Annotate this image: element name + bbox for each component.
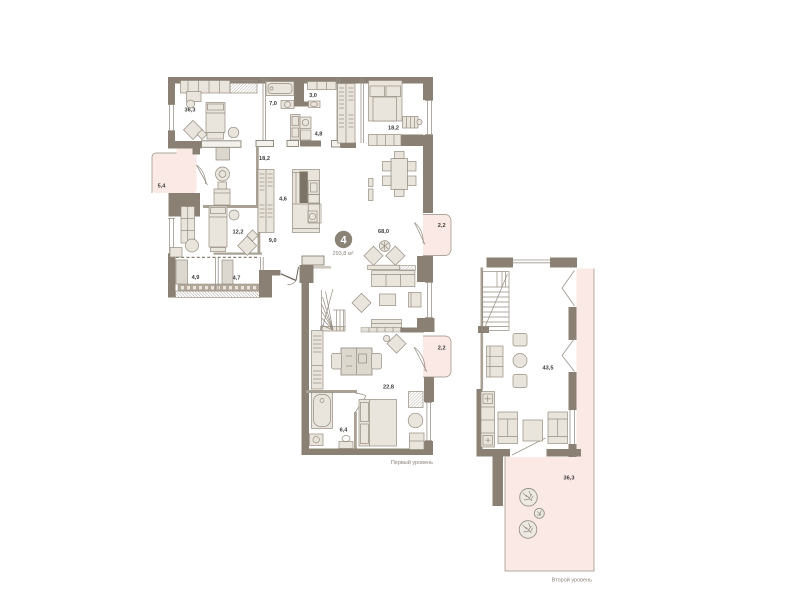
- svg-text:4,8: 4,8: [315, 132, 323, 138]
- svg-text:18,2: 18,2: [259, 156, 270, 162]
- svg-text:22,8: 22,8: [383, 385, 394, 391]
- svg-text:2,2: 2,2: [438, 346, 446, 352]
- svg-text:293,8 м²: 293,8 м²: [333, 251, 354, 257]
- svg-text:68,0: 68,0: [378, 229, 389, 235]
- svg-text:4,9: 4,9: [192, 275, 200, 281]
- svg-text:2,2: 2,2: [438, 223, 446, 229]
- svg-text:4,7: 4,7: [233, 276, 241, 282]
- svg-text:18,2: 18,2: [388, 126, 399, 132]
- svg-text:3,0: 3,0: [309, 93, 317, 99]
- svg-text:4,6: 4,6: [279, 197, 287, 203]
- svg-text:Первый уровень: Первый уровень: [391, 459, 433, 466]
- svg-text:9,0: 9,0: [269, 238, 277, 244]
- svg-text:36,3: 36,3: [564, 476, 575, 482]
- svg-text:7,0: 7,0: [269, 101, 277, 107]
- svg-text:36,3: 36,3: [185, 108, 196, 114]
- svg-text:43,5: 43,5: [543, 366, 554, 372]
- svg-text:12,2: 12,2: [233, 230, 244, 236]
- svg-text:4: 4: [340, 235, 347, 247]
- svg-text:6,4: 6,4: [340, 428, 349, 434]
- svg-text:5,4: 5,4: [158, 184, 167, 190]
- svg-text:Второй уровень: Второй уровень: [552, 577, 592, 584]
